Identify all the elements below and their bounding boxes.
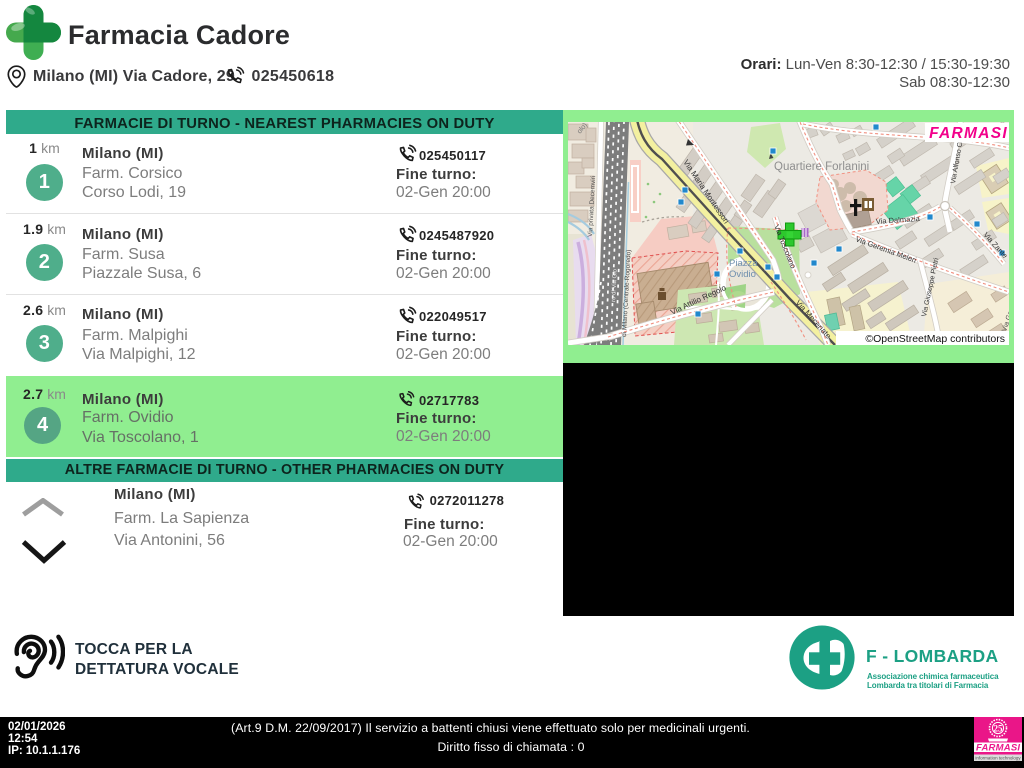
svg-text:Quartiere Forlanini: Quartiere Forlanini — [774, 161, 869, 173]
svg-text:FARMASI: FARMASI — [929, 125, 1008, 142]
svg-text:©OpenStreetMap contributors: ©OpenStreetMap contributors — [865, 333, 1005, 345]
svg-text:FARMASI: FARMASI — [976, 743, 1020, 754]
svg-text:information technology: information technology — [975, 756, 1021, 761]
svg-text:25: 25 — [994, 724, 1004, 734]
svg-text:Ovidio: Ovidio — [729, 269, 756, 280]
svg-text:Piazza: Piazza — [729, 258, 758, 269]
